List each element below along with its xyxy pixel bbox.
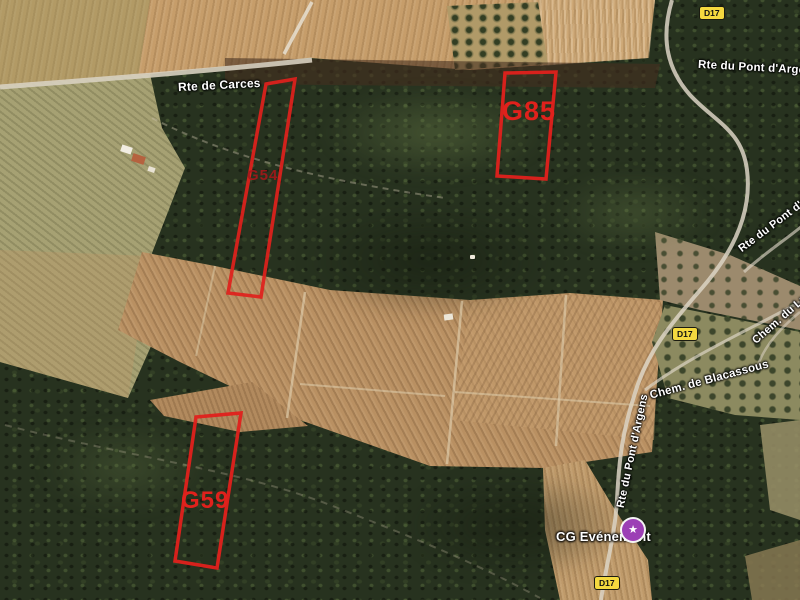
route-shield-d17-bottom: D17: [594, 576, 620, 590]
parcel-label-g54: G54: [247, 167, 278, 184]
parcel-outline-g54: [228, 79, 295, 297]
road-label-rte-du-pont-argens-top: Rte du Pont d'Argens: [698, 59, 800, 77]
route-shield-d17-mid: D17: [672, 327, 698, 341]
star-icon: ★: [628, 525, 638, 536]
route-shield-d17-top: D17: [699, 6, 725, 20]
forest-light-patch: [550, 170, 720, 255]
parcel-label-g59: G59: [181, 487, 229, 515]
satellite-map[interactable]: G54 G85 G59 Rte de Carces Rte du Pont d'…: [0, 0, 800, 600]
road-label-rte-de-carces: Rte de Carces: [178, 76, 261, 94]
event-poi-marker[interactable]: ★: [622, 519, 644, 541]
white-speck: [470, 255, 475, 259]
poi-cg-evenement[interactable]: ★: [622, 519, 644, 541]
forest-dark-patch: [400, 470, 630, 580]
forest-dark-patch: [300, 200, 560, 320]
road-label-rte-du-pont-argens-right: Rte du Pont d'A: [736, 194, 800, 255]
field-building: [444, 313, 454, 320]
parcel-label-g85: G85: [502, 96, 556, 127]
